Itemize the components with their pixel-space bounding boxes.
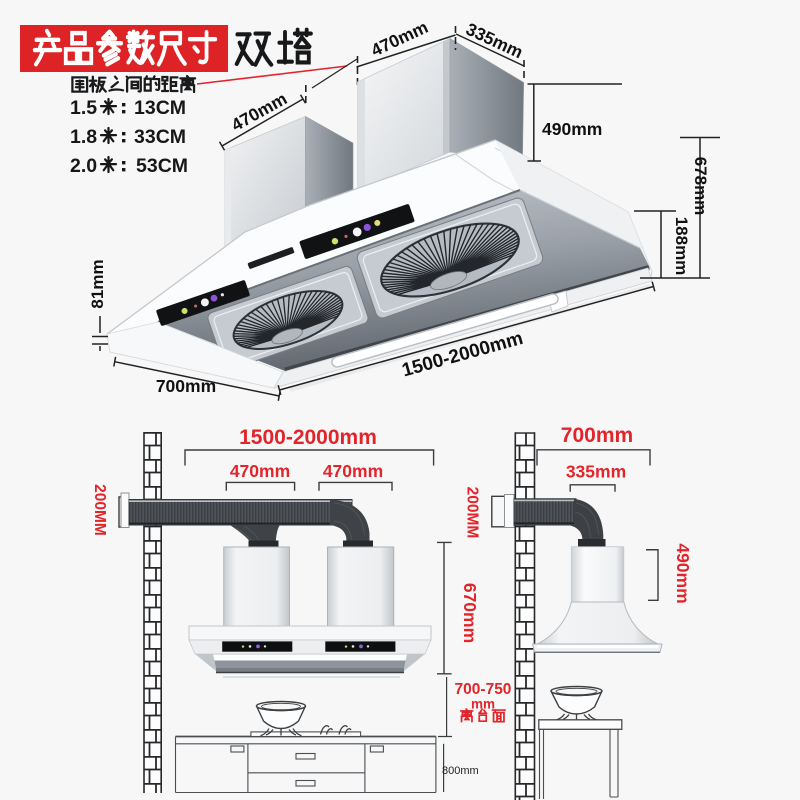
- svg-text:200MM: 200MM: [464, 487, 481, 539]
- svg-text:1500-2000mm: 1500-2000mm: [239, 426, 377, 449]
- svg-text:200MM: 200MM: [91, 484, 108, 536]
- svg-text:53CM: 53CM: [136, 155, 188, 177]
- svg-text:33CM: 33CM: [134, 126, 186, 148]
- svg-text:81mm: 81mm: [88, 259, 107, 308]
- svg-text:2.0: 2.0: [70, 155, 97, 177]
- svg-text:700-750: 700-750: [455, 681, 512, 698]
- svg-text:188mm: 188mm: [672, 217, 691, 276]
- svg-text:700mm: 700mm: [156, 376, 216, 396]
- svg-text:490mm: 490mm: [542, 119, 602, 139]
- svg-text:470mm: 470mm: [323, 461, 383, 481]
- svg-text:13CM: 13CM: [134, 97, 186, 119]
- svg-text:700mm: 700mm: [561, 424, 633, 447]
- svg-text:1.8: 1.8: [70, 126, 97, 148]
- svg-text:335mm: 335mm: [566, 462, 626, 482]
- svg-text:1.5: 1.5: [70, 97, 97, 119]
- svg-text:670mm: 670mm: [460, 583, 480, 643]
- svg-text:470mm: 470mm: [230, 461, 290, 481]
- svg-text:678mm: 678mm: [691, 157, 710, 216]
- svg-text:490mm: 490mm: [673, 543, 693, 603]
- svg-text:800mm: 800mm: [442, 765, 479, 777]
